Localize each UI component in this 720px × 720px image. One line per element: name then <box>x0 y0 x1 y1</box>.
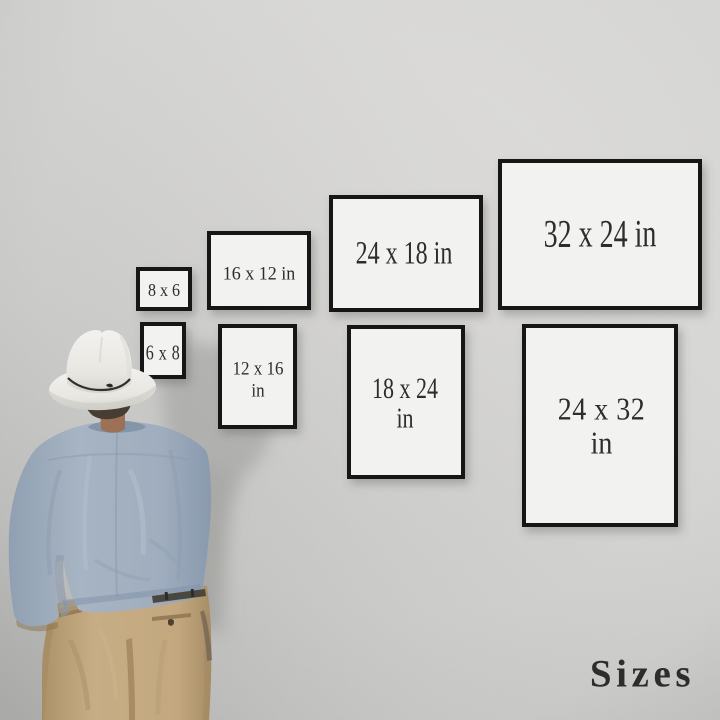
svg-text:24 x 32: 24 x 32 <box>558 391 645 427</box>
svg-text:16 x 12 in: 16 x 12 in <box>223 263 296 285</box>
svg-text:8 x 6: 8 x 6 <box>148 280 180 300</box>
svg-text:24 x 18 in: 24 x 18 in <box>356 236 453 271</box>
svg-text:Sizes: Sizes <box>590 653 695 696</box>
svg-text:32 x 24 in: 32 x 24 in <box>544 213 657 255</box>
svg-text:in: in <box>251 379 264 400</box>
svg-text:in: in <box>396 402 413 435</box>
svg-text:18 x 24: 18 x 24 <box>372 372 438 405</box>
svg-text:6 x 8: 6 x 8 <box>146 342 180 366</box>
svg-text:in: in <box>591 427 613 461</box>
svg-text:12 x 16: 12 x 16 <box>233 358 284 379</box>
